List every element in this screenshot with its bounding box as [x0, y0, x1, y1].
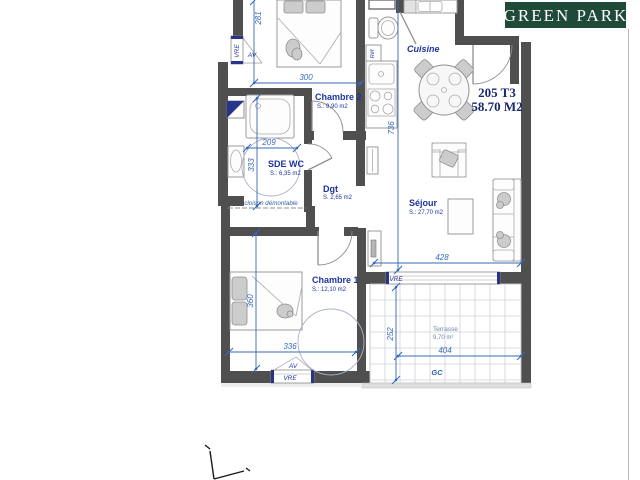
toilet — [369, 17, 398, 39]
unit-area: 58.70 M2 — [471, 99, 522, 114]
radiator — [367, 147, 378, 174]
logo-text: GREEN PARK — [504, 6, 629, 25]
dim-252: 252 — [386, 327, 395, 342]
dim-333: 333 — [247, 158, 256, 172]
label-av-bottom: AV — [288, 363, 298, 370]
washbasin — [228, 146, 244, 177]
label-cloison: cloison démontable — [244, 200, 298, 207]
dim-736: 736 — [387, 121, 396, 135]
window-bay-terrace — [386, 272, 500, 284]
dim-360: 360 — [246, 294, 255, 308]
dining-table — [413, 58, 476, 121]
label-gc: GC — [431, 368, 443, 377]
label-vre-bottom: VRE — [283, 375, 297, 382]
dim-336: 336 — [283, 342, 297, 351]
kitchen-counter-top — [404, 0, 457, 13]
kitchen-counter — [366, 61, 397, 128]
label-dgt: Dgt — [323, 184, 338, 194]
label-sde-wc: SDE WC — [268, 159, 305, 169]
terrace-edge — [362, 383, 531, 388]
area-chambre2: S.: 9,90 m2 — [317, 104, 348, 110]
wc-door — [400, 12, 416, 44]
unit-number: 205 T3 — [478, 85, 516, 100]
area-sde-wc: S.: 6,35 m2 — [270, 171, 301, 177]
floor-plan-drawing: 281 300 209 333 736 428 360 336 252 404 … — [0, 0, 640, 480]
dim-300: 300 — [299, 73, 313, 82]
washing-machine — [369, 0, 395, 9]
sde-wc-door — [308, 144, 332, 170]
coffee-table — [448, 199, 473, 234]
sofa — [493, 179, 521, 261]
chambre1-door — [318, 231, 352, 265]
floor-plan-page: 281 300 209 333 736 428 360 336 252 404 … — [0, 0, 640, 480]
label-ref-fridge: Réf — [370, 49, 376, 58]
tv-cabinet — [368, 231, 381, 266]
area-chambre1: S.: 12,10 m2 — [312, 287, 347, 293]
turning-circle-chambre1 — [298, 309, 364, 375]
dim-404: 404 — [438, 346, 452, 355]
logo: GREEN PARK — [504, 2, 629, 28]
bed-chambre2 — [277, 0, 341, 67]
label-chambre1: Chambre 1 — [312, 275, 359, 285]
label-cuisine: Cuisine — [407, 44, 440, 54]
facade-edge — [221, 383, 362, 387]
shower-fixture — [227, 101, 244, 118]
area-sejour: S.: 27,70 m2 — [409, 210, 444, 216]
dim-209: 209 — [261, 138, 276, 147]
north-arrow — [205, 445, 250, 479]
label-vre-terrace: VRE — [389, 276, 403, 283]
bed-chambre1 — [230, 272, 302, 330]
entry-door — [473, 45, 512, 84]
label-av-left: AV — [247, 52, 257, 59]
area-terrasse: 9,70 m² — [433, 335, 453, 341]
label-sejour: Séjour — [409, 198, 438, 208]
label-terrasse: Terrasse — [433, 326, 458, 333]
dim-281: 281 — [254, 11, 263, 25]
armchair — [432, 143, 466, 177]
label-vre-left: VRE — [234, 44, 241, 58]
area-dgt: S. 2,65 m2 — [323, 195, 353, 201]
label-chambre2: Chambre 2 — [315, 92, 362, 102]
dim-428: 428 — [435, 253, 449, 262]
